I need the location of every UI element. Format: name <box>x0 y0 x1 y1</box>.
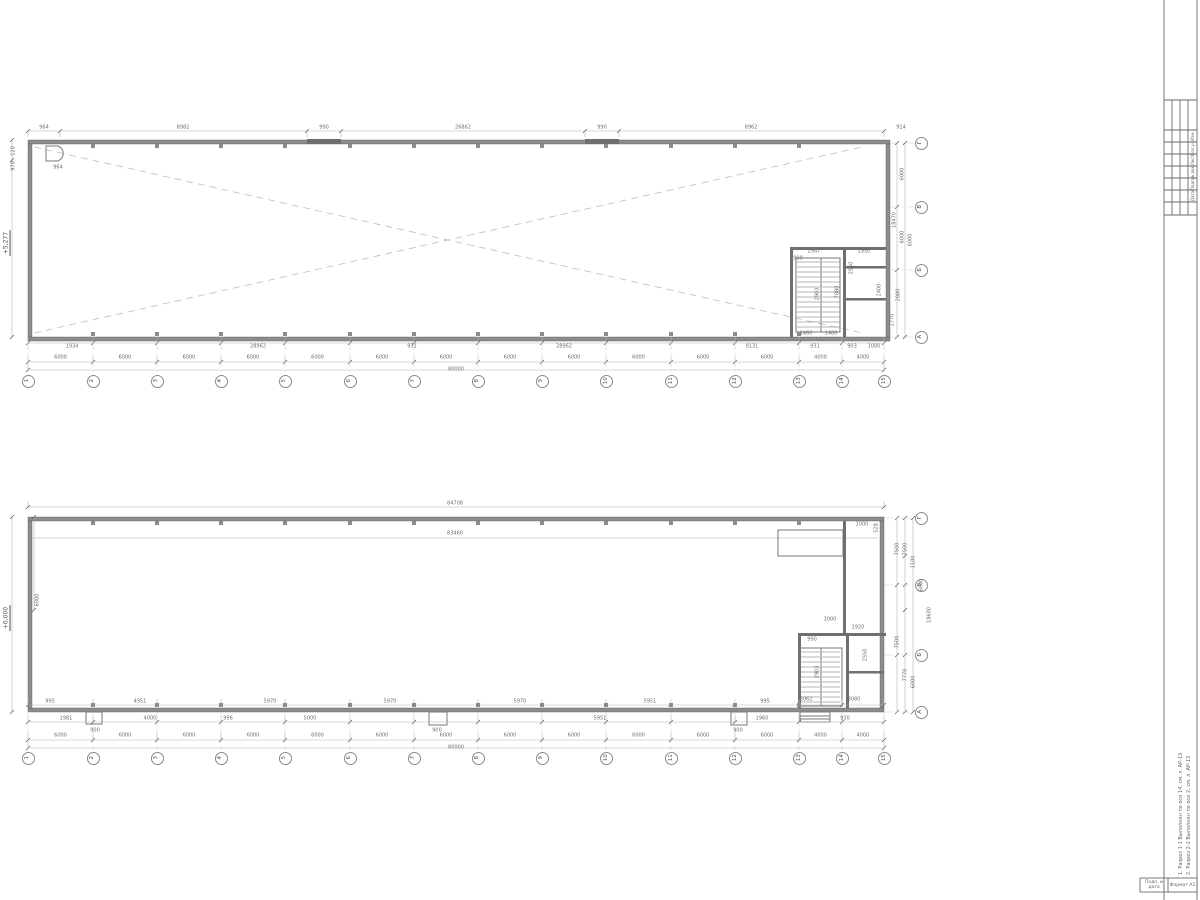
dim-text: 28962 <box>250 345 266 350</box>
grid-bubble-x: 7 <box>408 375 421 388</box>
pilaster <box>797 703 801 707</box>
grid-bubble-label: 10 <box>603 378 609 385</box>
dim-text: 6000 <box>697 734 710 739</box>
dim-text: 6000 <box>183 356 196 361</box>
dim-text: 903 <box>847 345 857 350</box>
grid-bubble-label: 9 <box>539 379 545 383</box>
dim-text: 6000 <box>440 356 453 361</box>
dim-text: 900 <box>733 729 743 734</box>
dim-text: 900 <box>90 729 100 734</box>
pilaster <box>155 521 159 525</box>
pilaster <box>348 703 352 707</box>
dim-text: 18600 <box>928 607 933 623</box>
dim-text: 930 <box>840 717 850 722</box>
pilaster <box>604 144 608 148</box>
grid-bubble-label: 4 <box>218 756 224 760</box>
pilaster <box>604 332 608 336</box>
partition-wall <box>843 521 846 633</box>
dim-text: 990 <box>793 257 803 262</box>
grid-bubble-label: 13 <box>796 378 802 385</box>
entrance-porch <box>429 712 447 725</box>
dim-text: 26862 <box>455 126 471 131</box>
elevation-mark: +0,000 <box>4 605 11 631</box>
dim-text: 6000 <box>568 734 581 739</box>
grid-bubble-y: Б <box>915 649 928 662</box>
pilaster <box>283 521 287 525</box>
dim-text: 4000 <box>857 356 870 361</box>
pilaster <box>476 332 480 336</box>
dim-text: 6000 <box>54 356 67 361</box>
dim-text: 990 <box>807 638 817 643</box>
sheet-note: 1. Разрез 1-1 Выполнен по оси 14, см. л.… <box>1178 753 1184 875</box>
dim-text: 1981 <box>60 717 73 722</box>
grid-bubble-x: 2 <box>87 375 100 388</box>
grid-bubble-label: 6 <box>347 379 353 383</box>
dim-text: 8962 <box>745 126 758 131</box>
revision-table-label: Лист <box>1191 155 1195 165</box>
revision-table-label: Изм. <box>1191 131 1195 140</box>
pilaster <box>155 703 159 707</box>
wall-pier <box>585 139 619 144</box>
dim-text: 914 <box>896 126 906 131</box>
dim-text: 990 <box>319 126 329 131</box>
grid-bubble-label: 14 <box>839 378 845 385</box>
revision-table-label: Кол.уч. <box>1191 140 1195 155</box>
dim-text: 6000 <box>568 356 581 361</box>
grid-bubble-x: 4 <box>215 752 228 765</box>
dim-text: 8982 <box>177 126 190 131</box>
dim-text: 2947 <box>808 250 821 255</box>
grid-bubble-label: 1 <box>25 756 31 760</box>
grid-bubble-y: Г <box>915 512 928 525</box>
dim-text: 964 <box>53 166 63 171</box>
pilaster <box>540 703 544 707</box>
dim-text: 2550 <box>850 262 855 275</box>
dim-text: 4951 <box>134 700 147 705</box>
grid-bubble-label: А <box>918 335 924 339</box>
grid-bubble-label: 12 <box>732 755 738 762</box>
grid-bubble-y: А <box>915 706 928 719</box>
dim-text: 6000 <box>504 356 517 361</box>
dim-text: 4000 <box>814 356 827 361</box>
pilaster <box>155 144 159 148</box>
grid-bubble-y: А <box>915 331 928 344</box>
dim-text: 1100 <box>912 556 917 569</box>
pilaster <box>348 144 352 148</box>
dim-text: 2903 <box>816 666 821 679</box>
dim-text: 7080 <box>836 286 841 299</box>
grid-bubble-x: 1 <box>22 375 35 388</box>
grid-bubble-x: 12 <box>729 375 742 388</box>
pilaster <box>412 521 416 525</box>
dim-text: 995 <box>760 700 770 705</box>
dim-text: 6000 <box>632 734 645 739</box>
pilaster <box>733 521 737 525</box>
dim-text: 990 <box>597 126 607 131</box>
dim-text: 6000 <box>697 356 710 361</box>
pilaster <box>476 703 480 707</box>
grid-bubble-x: 7 <box>408 752 421 765</box>
dim-text: 1934 <box>66 345 79 350</box>
pilaster <box>283 703 287 707</box>
grid-bubble-label: 14 <box>839 755 845 762</box>
dim-text: 6000 <box>183 734 196 739</box>
dim-text: 9131 <box>746 345 759 350</box>
grid-bubble-x: 5 <box>279 375 292 388</box>
grid-bubble-x: 3 <box>151 375 164 388</box>
dim-text: 2400 <box>878 284 883 297</box>
grid-bubble-x: 15 <box>878 752 891 765</box>
pilaster <box>155 332 159 336</box>
dim-text: 5970 <box>264 700 277 705</box>
grid-bubble-x: 1 <box>22 752 35 765</box>
dim-text: 6000 <box>632 356 645 361</box>
dim-text: 80000 <box>448 746 464 751</box>
grid-bubble-x: 5 <box>279 752 292 765</box>
lower-floor-plan <box>28 517 886 725</box>
pilaster <box>669 144 673 148</box>
grid-bubble-label: 10 <box>603 755 609 762</box>
dim-text: 900 <box>432 729 442 734</box>
dim-text: 7500 <box>904 543 909 556</box>
pilaster <box>219 703 223 707</box>
dim-text: 6000 <box>247 734 260 739</box>
dim-text: 970 <box>12 161 17 171</box>
pilaster <box>540 521 544 525</box>
dim-text: 1000 <box>868 345 881 350</box>
dim-text: 6000 <box>440 734 453 739</box>
grid-bubble-x: 8 <box>472 752 485 765</box>
dim-text: 7500 <box>896 636 901 649</box>
pilaster <box>604 703 608 707</box>
grid-bubble-x: 15 <box>878 375 891 388</box>
pilaster <box>733 144 737 148</box>
grid-bubble-label: 12 <box>732 378 738 385</box>
dim-text: 1000 <box>824 618 837 623</box>
grid-bubble-x: 9 <box>536 375 549 388</box>
dim-text: 2903 <box>816 288 821 301</box>
pilaster <box>219 144 223 148</box>
dim-text: 2880 <box>897 289 902 302</box>
dim-text: 5951 <box>644 700 657 705</box>
dim-text: 6000 <box>376 734 389 739</box>
grid-bubble-label: 3 <box>154 379 160 383</box>
dim-text: 6000 <box>761 356 774 361</box>
dim-text: 964 <box>39 126 49 131</box>
dim-text: 6000 <box>901 168 906 181</box>
grid-bubble-x: 14 <box>836 752 849 765</box>
dim-text: 1950 <box>858 250 871 255</box>
dim-text: 6000 <box>901 231 906 244</box>
grid-bubble-label: Б <box>918 268 924 272</box>
grid-bubble-x: 6 <box>344 752 357 765</box>
grid-bubble-label: В <box>918 205 924 209</box>
grid-bubble-x: 13 <box>793 752 806 765</box>
dim-text: 528 <box>875 523 880 533</box>
grid-bubble-x: 9 <box>536 752 549 765</box>
pilaster <box>412 144 416 148</box>
pilaster <box>669 703 673 707</box>
pilaster <box>733 332 737 336</box>
pilaster <box>797 521 801 525</box>
dim-text: 6000 <box>504 734 517 739</box>
footer-cell-right: Формат А1 <box>1169 879 1196 891</box>
dim-text: 6000 <box>761 734 774 739</box>
dim-text: 6000 <box>119 734 132 739</box>
pilaster <box>91 521 95 525</box>
dim-text: 2770 <box>891 314 896 327</box>
grid-bubble-label: 8 <box>475 379 481 383</box>
grid-bubble-label: А <box>918 710 924 714</box>
upper-floor-plan <box>28 139 890 341</box>
dim-text: 6000 <box>912 676 917 689</box>
grid-bubble-label: Б <box>918 653 924 657</box>
pilaster <box>219 332 223 336</box>
dim-text: 3062 <box>800 698 813 703</box>
pilaster <box>797 144 801 148</box>
pilaster <box>604 521 608 525</box>
grid-bubble-x: 12 <box>729 752 742 765</box>
dim-text: 5970 <box>384 700 397 705</box>
grid-bubble-label: 11 <box>668 378 674 385</box>
dim-text: 6000 <box>119 356 132 361</box>
drawing-linework <box>0 0 1200 900</box>
dim-text: 6000 <box>54 734 67 739</box>
grid-bubble-label: 2 <box>90 756 96 760</box>
revision-table-label: Дата <box>1191 191 1195 201</box>
sheet-note: 2. Разрез 2-2 Выполнен по оси 2, см. л. … <box>1186 756 1192 875</box>
dim-text: 1000 <box>856 523 869 528</box>
dim-text: 2550 <box>864 649 869 662</box>
grid-bubble-label: 1 <box>25 379 31 383</box>
grid-bubble-label: Г <box>918 141 924 144</box>
pilaster <box>476 521 480 525</box>
grid-bubble-label: 6 <box>347 756 353 760</box>
grid-bubble-x: 10 <box>600 752 613 765</box>
dim-text: 931 <box>407 345 417 350</box>
grid-bubble-label: 9 <box>539 756 545 760</box>
dim-text: 5970 <box>514 700 527 705</box>
dim-text: 4000 <box>857 734 870 739</box>
pilaster <box>733 703 737 707</box>
dim-text: 6000 <box>909 234 914 247</box>
dim-text: 7770 <box>904 669 909 682</box>
dim-text: 3080 <box>848 698 861 703</box>
dim-text: 1960 <box>756 717 769 722</box>
grid-bubble-x: 3 <box>151 752 164 765</box>
pilaster <box>540 332 544 336</box>
dim-text: 996 <box>223 717 233 722</box>
grid-bubble-y: Г <box>915 137 928 150</box>
grid-bubble-label: 5 <box>282 379 288 383</box>
pilaster <box>476 144 480 148</box>
dim-text: 6000 <box>247 356 260 361</box>
grid-bubble-label: 7 <box>411 756 417 760</box>
grid-bubble-label: 11 <box>668 755 674 762</box>
dim-text: 5000 <box>304 717 317 722</box>
dim-text: 120 <box>12 146 17 156</box>
entrance-steps <box>800 712 830 722</box>
grid-bubble-x: 2 <box>87 752 100 765</box>
platform-outline <box>778 530 843 556</box>
grid-bubble-y: В <box>915 201 928 214</box>
grid-bubble-label: 2 <box>90 379 96 383</box>
dim-text: 1460 <box>800 332 813 337</box>
pilaster <box>348 332 352 336</box>
grid-bubble-x: 11 <box>665 752 678 765</box>
grid-bubble-label: 4 <box>218 379 224 383</box>
grid-bubble-x: 11 <box>665 375 678 388</box>
elevation-mark: +5,277 <box>4 230 11 256</box>
dim-text: 4000 <box>814 734 827 739</box>
dim-text: 6000 <box>36 594 41 607</box>
grid-bubble-x: 6 <box>344 375 357 388</box>
dim-text: 80000 <box>448 368 464 373</box>
pilaster <box>91 703 95 707</box>
grid-bubble-label: Г <box>918 516 924 519</box>
dim-text: 931 <box>810 345 820 350</box>
dim-text: 6000 <box>311 734 324 739</box>
pilaster <box>348 521 352 525</box>
grid-bubble-label: 8 <box>475 756 481 760</box>
dim-text: 7500 <box>896 543 901 556</box>
dim-text: 6000 <box>376 356 389 361</box>
dimension-layer <box>10 129 915 751</box>
pilaster <box>412 703 416 707</box>
grid-bubble-label: 3 <box>154 756 160 760</box>
dim-text: 5951 <box>594 717 607 722</box>
grid-bubble-x: 8 <box>472 375 485 388</box>
grid-bubble-x: 13 <box>793 375 806 388</box>
revision-table-label: Подп. <box>1191 178 1195 190</box>
door-fixture-icon <box>46 146 63 161</box>
pilaster <box>283 332 287 336</box>
pilaster <box>219 521 223 525</box>
dim-text: 995 <box>45 700 55 705</box>
dim-text: 18470 <box>893 212 898 228</box>
pilaster <box>91 144 95 148</box>
dim-text: 6000 <box>920 579 925 592</box>
grid-bubble-y: Б <box>915 264 928 277</box>
grid-bubble-label: 15 <box>881 755 887 762</box>
pilaster <box>412 332 416 336</box>
grid-bubble-x: 14 <box>836 375 849 388</box>
cad-sheet: 1. Разрез 1-1 Выполнен по оси 14, см. л.… <box>0 0 1200 900</box>
grid-bubble-label: 5 <box>282 756 288 760</box>
grid-bubble-label: 13 <box>796 755 802 762</box>
pilaster <box>283 144 287 148</box>
footer-cell-left: Подп. и дата <box>1141 879 1167 891</box>
dim-text: 1920 <box>852 626 865 631</box>
pilaster <box>669 332 673 336</box>
grid-bubble-x: 4 <box>215 375 228 388</box>
dim-text: 83460 <box>447 532 463 537</box>
dim-text: 28962 <box>556 345 572 350</box>
pilaster <box>91 332 95 336</box>
dim-text: 4000 <box>144 717 157 722</box>
dim-text: 1480 <box>825 332 838 337</box>
dim-text: 84708 <box>447 502 463 507</box>
grid-bubble-label: 7 <box>411 379 417 383</box>
wall-pier <box>307 139 341 144</box>
grid-bubble-x: 10 <box>600 375 613 388</box>
grid-bubble-label: 15 <box>881 378 887 385</box>
dim-text: 6000 <box>311 356 324 361</box>
pilaster <box>540 144 544 148</box>
pilaster <box>669 521 673 525</box>
